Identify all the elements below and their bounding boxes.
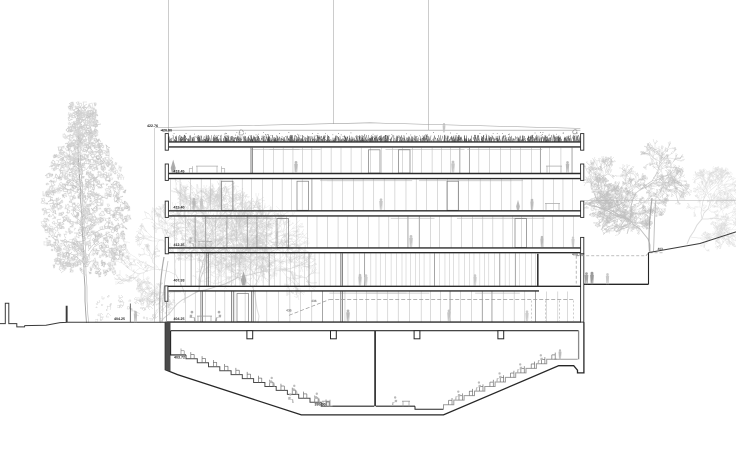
svg-text:418.45: 418.45 [174, 170, 185, 174]
svg-text:395.50: 395.50 [315, 403, 326, 407]
svg-text:408.50: 408.50 [572, 252, 583, 256]
svg-text:404.25: 404.25 [174, 317, 185, 321]
svg-text:407.93: 407.93 [174, 279, 185, 283]
svg-text:404.25: 404.25 [114, 317, 125, 321]
svg-text:435: 435 [286, 309, 292, 313]
svg-text:412.35: 412.35 [174, 243, 185, 247]
svg-text:422.76: 422.76 [147, 124, 158, 128]
svg-text:436: 436 [311, 299, 317, 303]
svg-text:420.80: 420.80 [161, 128, 172, 132]
svg-text:403.72: 403.72 [174, 355, 185, 359]
svg-text:403: 403 [658, 247, 664, 251]
svg-text:415.40: 415.40 [174, 205, 185, 209]
